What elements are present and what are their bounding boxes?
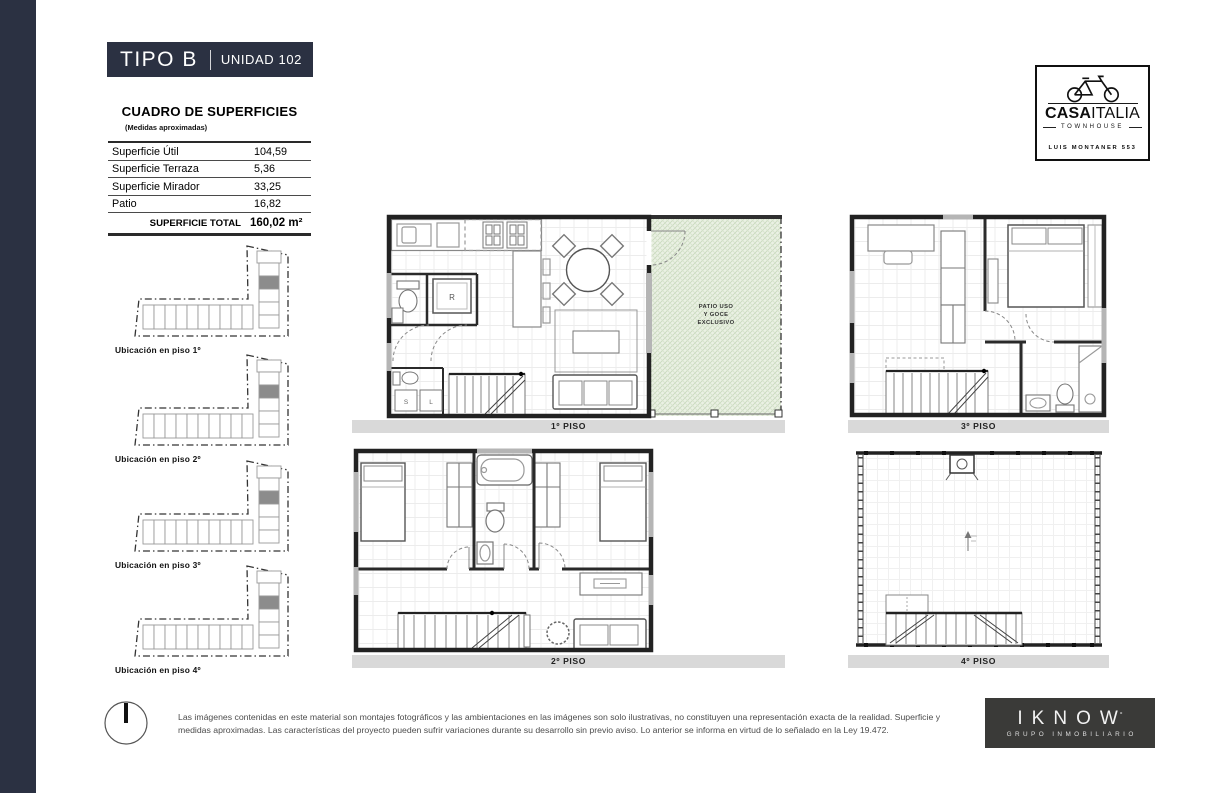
brand-tagline: TOWNHOUSE: [1043, 124, 1142, 130]
toilet-tank-icon: [393, 372, 400, 385]
bed-left: [361, 463, 405, 541]
desk-right: [580, 573, 642, 595]
brand-address: LUIS MONTANER 553: [1048, 145, 1136, 151]
tagline-dash-right: [1129, 127, 1142, 128]
row-label: Superficie Útil: [112, 146, 254, 158]
tagline-dash-left: [1043, 127, 1056, 128]
header-divider: [210, 50, 211, 70]
developer-subtitle: GRUPO INMOBILIARIO: [1003, 731, 1136, 738]
brand-logo: CASAITALIA TOWNHOUSE LUIS MONTANER 553: [1035, 65, 1150, 161]
surface-table: CUADRO DE SUPERFICIES (Medidas aproximad…: [108, 104, 311, 236]
location-diagram-3: Ubicación en piso 3º: [115, 458, 307, 570]
svg-text:EXCLUSIVO: EXCLUSIVO: [697, 320, 734, 326]
table-row: Patio 16,82: [108, 196, 311, 214]
building-outline-diagram: [115, 563, 307, 659]
plan-label-piso-2: 2º PISO: [352, 655, 785, 668]
developer-mark: °: [1120, 712, 1132, 719]
plant-icon: [547, 622, 569, 644]
floor-plan-piso-2: [352, 447, 655, 655]
table-row: Superficie Mirador 33,25: [108, 178, 311, 196]
toilet-bowl-icon: [486, 510, 504, 532]
total-label: SUPERFICIE TOTAL: [108, 218, 250, 229]
plan-label-piso-1: 1º PISO: [352, 420, 785, 433]
table-row: Superficie Terraza 5,36: [108, 161, 311, 179]
total-value: 160,02 m²: [250, 217, 302, 229]
disclaimer-text: Las imágenes contenidas en este material…: [178, 711, 973, 738]
diagram-label: Ubicación en piso 4º: [115, 665, 307, 675]
wardrobe-right: [535, 463, 560, 527]
row-label: Superficie Terraza: [112, 163, 254, 175]
north-indicator-icon: [103, 700, 149, 746]
wardrobe-left: [447, 463, 472, 527]
table-row: Superficie Útil 104,59: [108, 143, 311, 161]
plan-label-piso-4: 4º PISO: [848, 655, 1109, 668]
svg-text:Y GOCE: Y GOCE: [704, 312, 729, 318]
page: { "colors": { "accent_navy": "#2b3142", …: [0, 0, 1225, 793]
location-diagram-2: Ubicación en piso 2º: [115, 352, 307, 464]
washer-label: S: [404, 399, 409, 406]
dryer-label: L: [429, 399, 433, 406]
left-accent-bar: [0, 0, 36, 793]
table-total-row: SUPERFICIE TOTAL 160,02 m²: [108, 213, 311, 233]
location-diagram-1: Ubicación en piso 1º: [115, 243, 307, 355]
logo-rule: [1048, 103, 1138, 104]
table-body: Superficie Útil 104,59 Superficie Terraz…: [108, 141, 311, 236]
developer-name: IKNOW°: [1008, 708, 1131, 730]
developer-logo: IKNOW° GRUPO INMOBILIARIO: [985, 698, 1155, 748]
plan-label-piso-3: 3º PISO: [848, 420, 1109, 433]
toilet-bowl-icon: [402, 372, 418, 384]
row-value: 16,82: [254, 198, 281, 210]
door-opening: [647, 231, 652, 265]
tagline-text: TOWNHOUSE: [1061, 124, 1124, 130]
toilet-tank-icon: [1056, 405, 1074, 412]
unit-header: TIPO B UNIDAD 102: [107, 42, 313, 77]
small-sink-icon: [392, 308, 403, 323]
floor-plan-piso-1: R S L: [385, 213, 785, 419]
floor-plan-piso-4: [850, 447, 1108, 652]
brand-name-primary: CASA: [1045, 105, 1091, 122]
fridge-label: R: [449, 293, 455, 302]
fridge: R: [433, 279, 471, 313]
location-diagram-4: Ubicación en piso 4º: [115, 563, 307, 675]
type-label: TIPO B: [120, 48, 198, 72]
building-outline-diagram: [115, 458, 307, 554]
row-label: Superficie Mirador: [112, 181, 254, 193]
toilet-icon: [397, 281, 419, 312]
row-label: Patio: [112, 198, 254, 210]
table-subtitle: (Medidas aproximadas): [125, 123, 311, 132]
row-value: 33,25: [254, 181, 281, 193]
building-outline-diagram: [115, 243, 307, 339]
stairs-1: [449, 372, 525, 415]
stairs-2: [398, 611, 530, 649]
bicycle-icon: [1062, 72, 1124, 104]
coffee-table: [573, 331, 619, 353]
building-outline-diagram: [115, 352, 307, 448]
row-value: 104,59: [254, 146, 287, 158]
bed-right: [600, 463, 646, 541]
table-title: CUADRO DE SUPERFICIES: [108, 104, 311, 119]
brand-name: CASAITALIA: [1045, 105, 1140, 123]
brand-name-secondary: ITALIA: [1091, 105, 1140, 122]
floor-plan-piso-3: [848, 213, 1108, 419]
toilet-bowl-icon: [1057, 384, 1073, 404]
row-value: 5,36: [254, 163, 275, 175]
sofa: [553, 375, 637, 409]
bed-double: [1008, 225, 1102, 307]
svg-text:PATIO USO: PATIO USO: [699, 304, 734, 310]
unit-label: UNIDAD 102: [221, 52, 302, 67]
